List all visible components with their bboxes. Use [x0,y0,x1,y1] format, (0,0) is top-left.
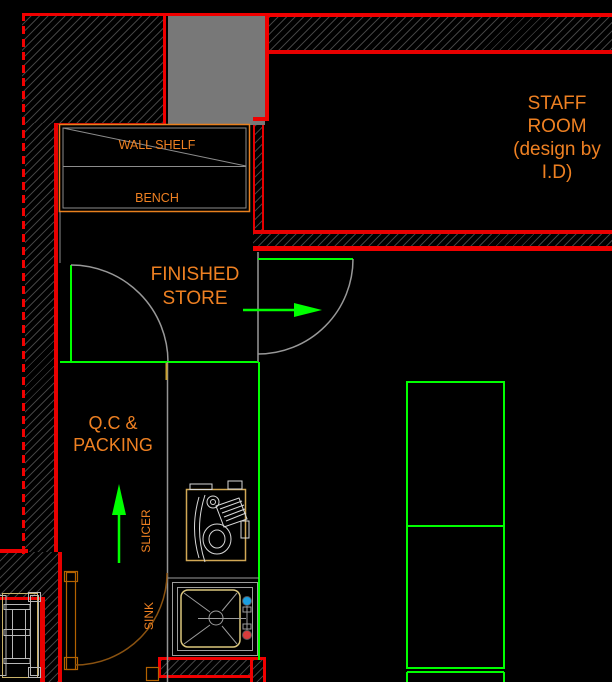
finished-store-line2: STORE [115,287,275,311]
wall-edge-staff-connector [253,117,269,121]
finished-store-label: FINISHED STORE [115,263,275,311]
bench-label: BENCH [77,191,237,205]
wall-edge-top [22,13,612,16]
staff-room-line3: (design by [467,138,612,161]
qc-packing-line1: Q.C & [33,412,193,434]
slicer-label: SLICER [139,509,153,552]
wall-edge-bottom-left-top [0,549,28,553]
cold-water-valve [243,597,252,606]
wall-edge-left-dashed [22,13,25,557]
wall-edge-gray-right [265,14,269,119]
wall-staff-room-left [253,117,264,235]
solid-gray-column-block [168,14,265,125]
qc-packing-line2: PACKING [33,434,193,456]
staff-room-label: STAFF ROOM (design by I.D) [467,92,612,184]
staff-room-line2: ROOM [467,115,612,138]
partition-lines [60,362,259,682]
wall-left-column [25,123,58,552]
hot-water-valve [243,631,252,640]
staff-room-line4: I.D) [467,161,612,184]
wall-bottom-step [250,660,266,682]
wall-recess-rack-alcove [0,597,45,682]
cad-drawing-canvas[interactable]: STAFF ROOM (design by I.D) FINISHED STOR… [0,0,612,682]
wall-edge-gray-left [163,14,166,124]
wall-shelf-label: WALL SHELF [77,138,237,152]
slicer-equipment [187,481,250,562]
flow-arrow-up [112,484,126,563]
sink-label: SINK [142,602,156,630]
green-rack-outlines [407,382,504,682]
qc-packing-label: Q.C & PACKING [33,412,193,456]
wall-staff-room-bottom [253,230,612,251]
wall-staff-room-top [269,13,612,54]
sink-equipment [168,578,259,656]
staff-room-line1: STAFF [467,92,612,115]
finished-store-line1: FINISHED [115,263,275,287]
wall-top-left-block [22,13,166,125]
